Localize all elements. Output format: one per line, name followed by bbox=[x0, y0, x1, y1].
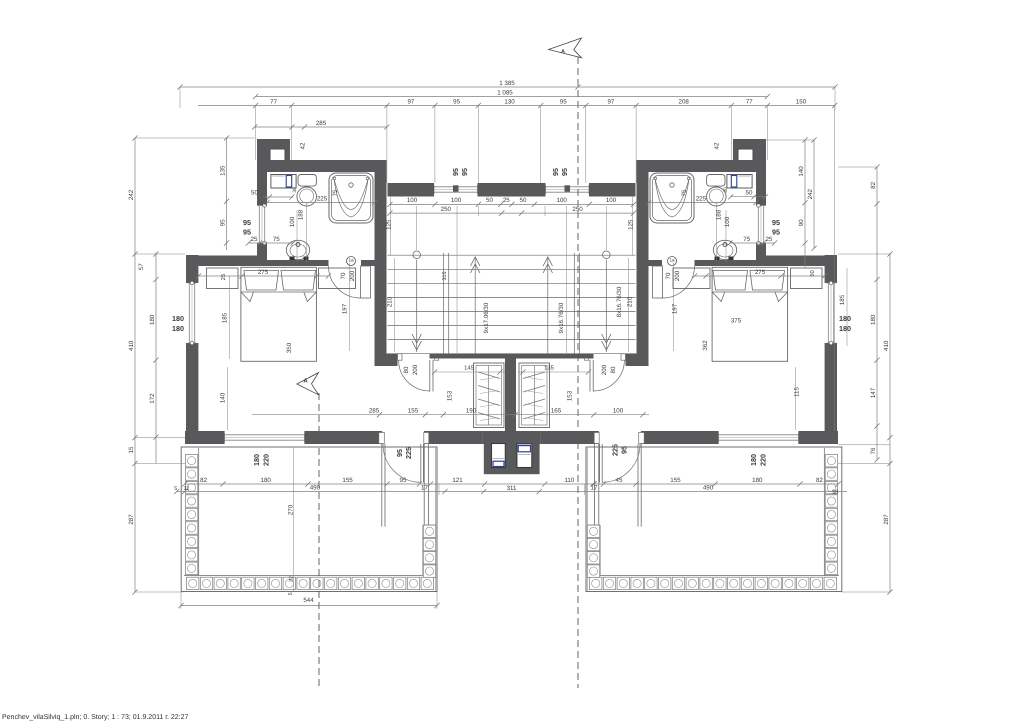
svg-text:95: 95 bbox=[551, 168, 560, 176]
svg-text:30: 30 bbox=[723, 187, 729, 193]
svg-text:100: 100 bbox=[613, 408, 624, 415]
svg-text:95: 95 bbox=[453, 98, 460, 105]
svg-text:95: 95 bbox=[772, 218, 780, 227]
svg-text:250: 250 bbox=[572, 206, 583, 213]
svg-text:225: 225 bbox=[317, 195, 328, 202]
svg-text:110: 110 bbox=[564, 477, 574, 484]
svg-text:32: 32 bbox=[289, 576, 295, 582]
svg-text:45: 45 bbox=[616, 477, 623, 484]
svg-text:220: 220 bbox=[262, 454, 271, 466]
svg-text:A: A bbox=[303, 378, 308, 385]
svg-text:200: 200 bbox=[412, 364, 419, 375]
svg-text:375: 375 bbox=[731, 318, 742, 325]
svg-text:80: 80 bbox=[403, 366, 410, 373]
svg-text:25: 25 bbox=[220, 274, 227, 280]
svg-text:180: 180 bbox=[839, 314, 851, 323]
svg-text:180: 180 bbox=[172, 324, 184, 333]
svg-text:95: 95 bbox=[560, 98, 567, 105]
svg-text:410: 410 bbox=[883, 340, 890, 351]
svg-text:311: 311 bbox=[507, 485, 517, 492]
svg-text:9x17.06/30: 9x17.06/30 bbox=[483, 302, 490, 333]
svg-text:70: 70 bbox=[340, 272, 347, 279]
svg-text:140: 140 bbox=[220, 392, 227, 403]
svg-text:185: 185 bbox=[222, 312, 229, 323]
svg-text:410: 410 bbox=[128, 340, 135, 351]
svg-text:95: 95 bbox=[395, 449, 404, 457]
svg-text:100: 100 bbox=[724, 216, 731, 227]
svg-text:490: 490 bbox=[310, 484, 321, 491]
svg-text:180: 180 bbox=[870, 314, 877, 325]
svg-text:97: 97 bbox=[407, 98, 414, 105]
svg-text:30: 30 bbox=[292, 187, 298, 193]
svg-text:287: 287 bbox=[883, 514, 890, 525]
svg-text:155: 155 bbox=[342, 477, 353, 484]
svg-text:5: 5 bbox=[174, 486, 177, 492]
svg-text:32: 32 bbox=[184, 486, 190, 492]
svg-text:82: 82 bbox=[200, 477, 207, 484]
svg-text:200: 200 bbox=[674, 270, 681, 281]
svg-text:50: 50 bbox=[486, 197, 493, 204]
svg-text:100: 100 bbox=[289, 216, 296, 227]
svg-text:17: 17 bbox=[421, 484, 428, 491]
svg-text:225: 225 bbox=[611, 444, 620, 456]
svg-text:25: 25 bbox=[765, 236, 772, 243]
svg-text:287: 287 bbox=[128, 514, 135, 525]
svg-text:25: 25 bbox=[503, 197, 510, 204]
svg-text:25: 25 bbox=[251, 236, 258, 243]
svg-text:250: 250 bbox=[441, 206, 452, 213]
svg-text:50: 50 bbox=[520, 197, 527, 204]
svg-text:Penchev_vilaSilviq_1.pln; 0. S: Penchev_vilaSilviq_1.pln; 0. Story; 1 : … bbox=[2, 713, 189, 721]
svg-text:147: 147 bbox=[870, 387, 877, 398]
svg-text:125: 125 bbox=[628, 219, 635, 230]
svg-text:75: 75 bbox=[743, 236, 750, 243]
svg-text:1 385: 1 385 bbox=[499, 80, 515, 87]
svg-text:145: 145 bbox=[464, 366, 474, 372]
svg-text:153: 153 bbox=[567, 390, 574, 401]
svg-text:57: 57 bbox=[138, 263, 145, 270]
svg-text:38: 38 bbox=[832, 489, 839, 496]
svg-text:42: 42 bbox=[714, 142, 721, 149]
svg-text:150: 150 bbox=[796, 98, 807, 105]
svg-text:220: 220 bbox=[759, 454, 768, 466]
svg-text:135: 135 bbox=[544, 365, 554, 372]
svg-text:180: 180 bbox=[252, 454, 261, 466]
svg-text:544: 544 bbox=[303, 597, 314, 604]
svg-text:77: 77 bbox=[746, 98, 753, 105]
svg-text:135: 135 bbox=[219, 165, 226, 176]
svg-text:155: 155 bbox=[408, 408, 419, 415]
svg-text:350: 350 bbox=[286, 342, 293, 353]
svg-text:95: 95 bbox=[620, 446, 629, 454]
svg-text:95: 95 bbox=[772, 228, 780, 237]
svg-text:9x16.76/30: 9x16.76/30 bbox=[558, 302, 565, 333]
svg-text:225: 225 bbox=[404, 447, 413, 459]
svg-text:97: 97 bbox=[608, 98, 615, 105]
svg-text:75: 75 bbox=[332, 189, 339, 196]
svg-text:153: 153 bbox=[447, 390, 454, 401]
svg-text:185: 185 bbox=[839, 294, 846, 305]
svg-text:95: 95 bbox=[219, 219, 226, 226]
svg-text:285: 285 bbox=[316, 120, 327, 127]
svg-text:8x16.76/30: 8x16.76/30 bbox=[616, 286, 623, 317]
svg-text:180: 180 bbox=[752, 477, 763, 484]
svg-text:15: 15 bbox=[128, 446, 135, 453]
svg-text:17: 17 bbox=[591, 485, 598, 492]
svg-text:80: 80 bbox=[610, 366, 617, 373]
svg-text:130: 130 bbox=[504, 98, 515, 105]
svg-text:165: 165 bbox=[551, 408, 562, 415]
svg-text:315: 315 bbox=[442, 272, 448, 281]
svg-text:50: 50 bbox=[809, 270, 816, 276]
svg-text:155: 155 bbox=[670, 477, 681, 484]
svg-text:490: 490 bbox=[703, 485, 714, 492]
svg-text:115: 115 bbox=[794, 387, 801, 397]
svg-text:242: 242 bbox=[128, 189, 135, 200]
svg-text:5: 5 bbox=[288, 592, 294, 595]
svg-text:100: 100 bbox=[606, 197, 617, 204]
svg-text:285: 285 bbox=[369, 408, 380, 415]
svg-text:95: 95 bbox=[460, 168, 469, 176]
svg-text:275: 275 bbox=[258, 269, 269, 276]
svg-text:100: 100 bbox=[407, 197, 418, 204]
svg-text:200: 200 bbox=[349, 270, 356, 281]
svg-text:210: 210 bbox=[387, 296, 394, 307]
svg-text:95: 95 bbox=[243, 218, 251, 227]
svg-text:70: 70 bbox=[665, 272, 672, 279]
svg-text:A: A bbox=[561, 49, 565, 55]
svg-text:100: 100 bbox=[557, 197, 568, 204]
svg-text:200: 200 bbox=[601, 364, 608, 375]
svg-text:180: 180 bbox=[749, 454, 758, 466]
svg-text:121: 121 bbox=[452, 477, 463, 484]
svg-text:76: 76 bbox=[870, 447, 877, 454]
svg-text:208: 208 bbox=[679, 98, 690, 105]
svg-text:188: 188 bbox=[716, 209, 723, 220]
svg-text:275: 275 bbox=[755, 269, 766, 276]
svg-text:180: 180 bbox=[172, 314, 184, 323]
svg-text:95: 95 bbox=[400, 477, 407, 484]
svg-text:1a: 1a bbox=[669, 258, 675, 263]
svg-text:190: 190 bbox=[466, 408, 477, 415]
svg-text:50: 50 bbox=[746, 190, 753, 197]
svg-text:197: 197 bbox=[342, 303, 349, 314]
svg-text:125: 125 bbox=[386, 219, 393, 230]
svg-text:242: 242 bbox=[807, 188, 814, 199]
svg-text:180: 180 bbox=[839, 324, 851, 333]
svg-text:95: 95 bbox=[560, 168, 569, 176]
svg-text:100: 100 bbox=[451, 197, 462, 204]
svg-text:362: 362 bbox=[702, 340, 709, 351]
svg-text:90: 90 bbox=[798, 219, 805, 226]
svg-text:82: 82 bbox=[870, 181, 877, 188]
svg-text:42: 42 bbox=[300, 142, 307, 149]
svg-text:225: 225 bbox=[696, 195, 707, 202]
svg-text:75: 75 bbox=[681, 189, 688, 196]
svg-text:1 085: 1 085 bbox=[497, 89, 513, 96]
svg-text:75: 75 bbox=[273, 236, 280, 243]
svg-text:180: 180 bbox=[149, 314, 156, 325]
svg-text:140: 140 bbox=[798, 166, 805, 177]
svg-text:188: 188 bbox=[298, 209, 305, 220]
svg-text:82: 82 bbox=[816, 477, 823, 484]
svg-text:210: 210 bbox=[627, 296, 634, 307]
svg-text:95: 95 bbox=[451, 168, 460, 176]
svg-text:77: 77 bbox=[270, 98, 277, 105]
svg-text:50: 50 bbox=[251, 190, 258, 197]
svg-text:172: 172 bbox=[149, 393, 156, 404]
svg-text:180: 180 bbox=[261, 477, 272, 484]
svg-text:197: 197 bbox=[672, 303, 679, 314]
svg-text:1a: 1a bbox=[348, 258, 354, 263]
